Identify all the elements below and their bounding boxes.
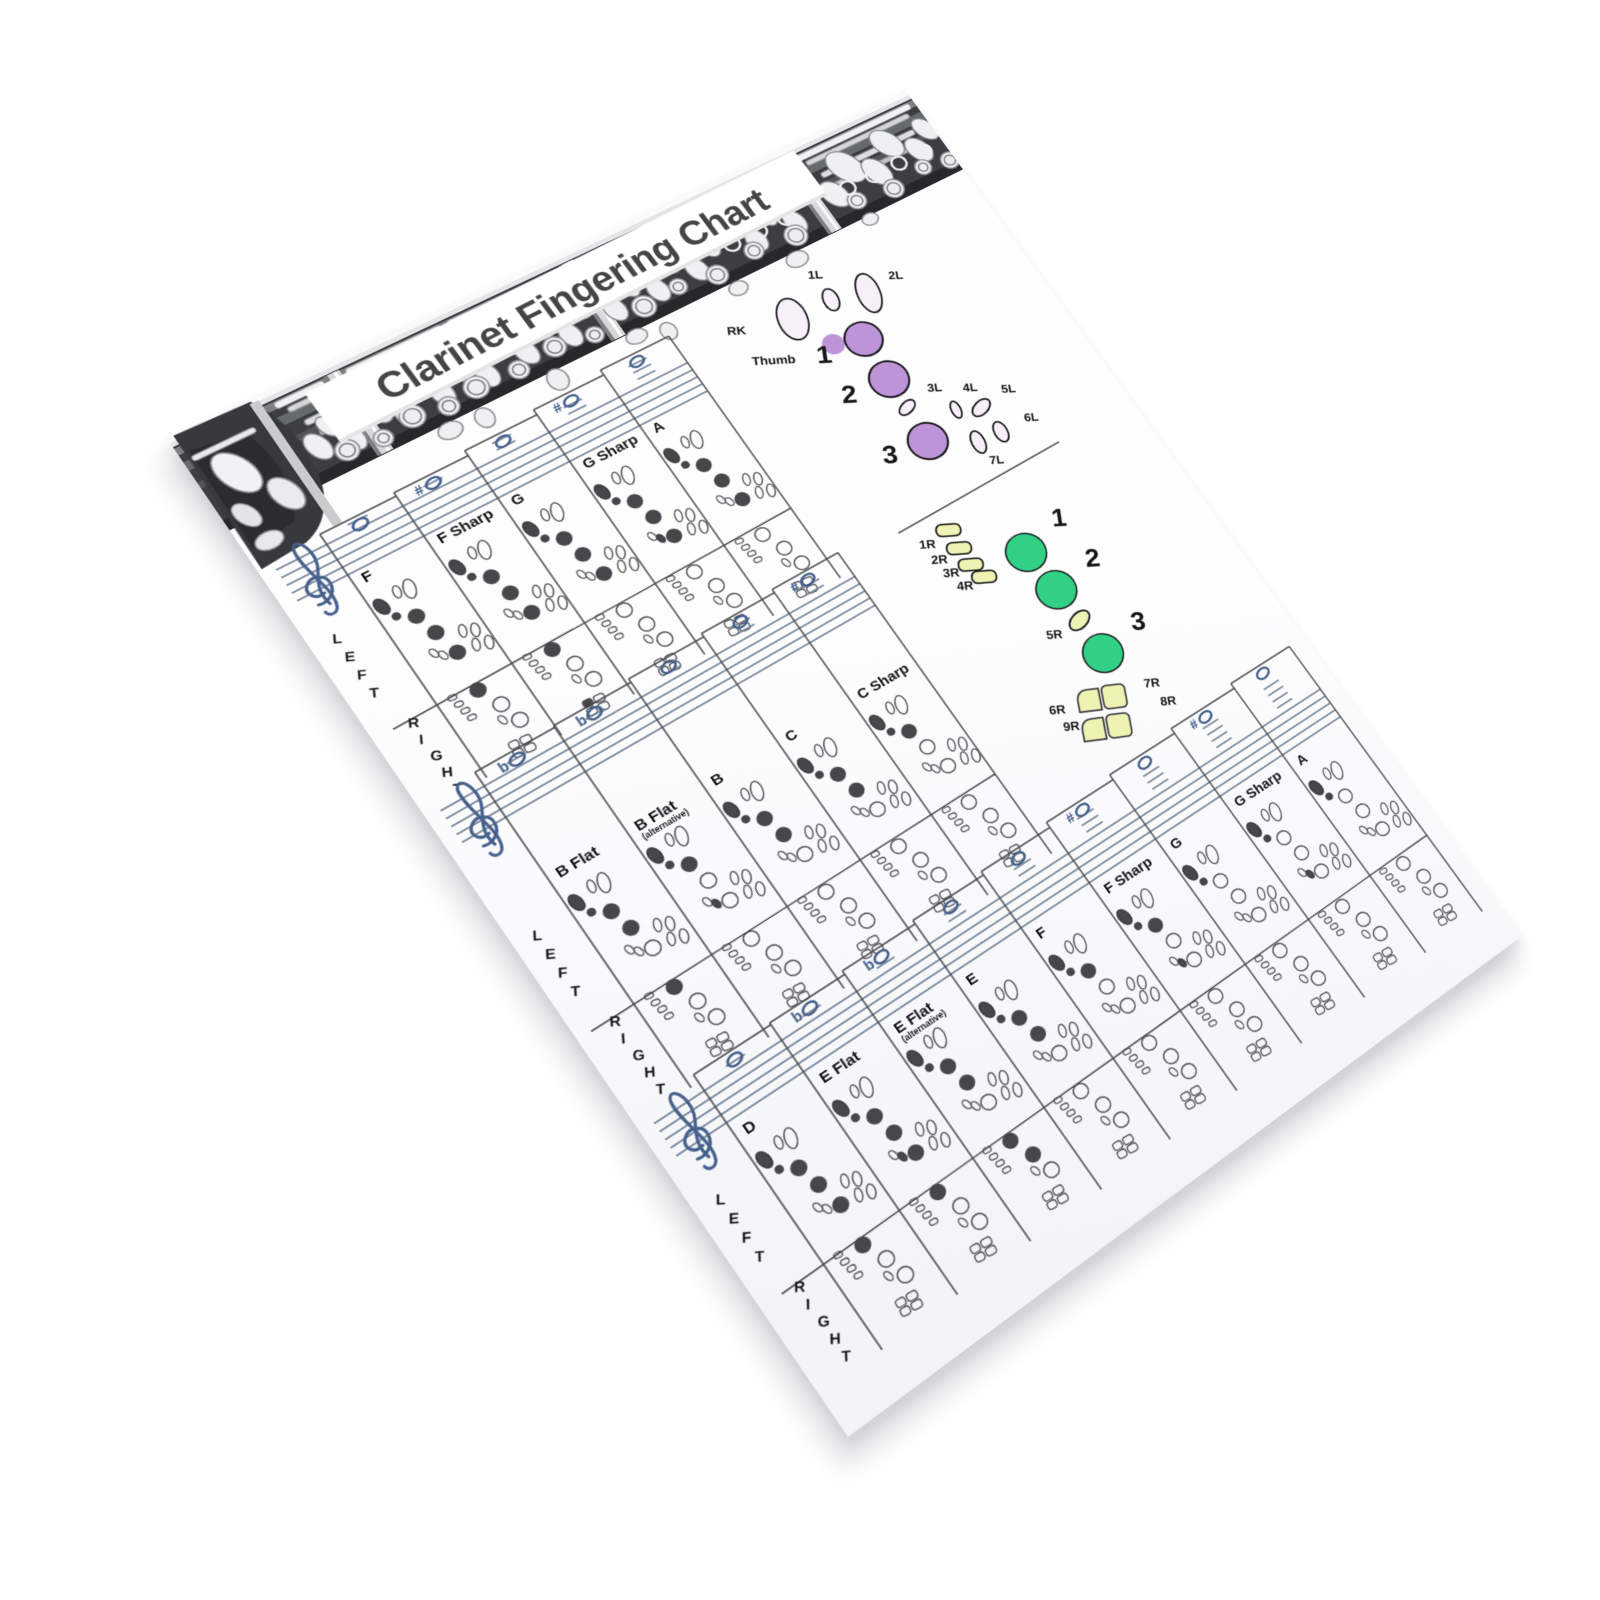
svg-text:T: T [570, 984, 580, 1001]
svg-text:6L: 6L [1023, 410, 1040, 424]
svg-text:G Sharp: G Sharp [1231, 768, 1285, 811]
svg-text:A: A [649, 418, 668, 436]
svg-text:E Flat: E Flat [816, 1047, 864, 1087]
svg-text:B: B [707, 770, 727, 790]
svg-text:5R: 5R [1045, 627, 1063, 642]
svg-text:R: R [407, 716, 420, 732]
svg-text:9R: 9R [1062, 718, 1080, 733]
svg-text:Thumb: Thumb [751, 352, 796, 367]
svg-text:F: F [1033, 924, 1051, 943]
svg-text:2: 2 [840, 381, 859, 409]
svg-text:RK: RK [726, 324, 747, 338]
svg-text:T: T [369, 686, 380, 702]
svg-text:7R: 7R [1143, 675, 1161, 690]
svg-text:G: G [507, 490, 528, 509]
svg-text:7L: 7L [988, 453, 1005, 467]
svg-text:G: G [1167, 834, 1186, 854]
svg-text:L: L [716, 1192, 726, 1209]
svg-text:I: I [621, 1031, 626, 1047]
svg-text:I: I [806, 1297, 811, 1314]
svg-text:H: H [829, 1331, 840, 1349]
svg-text:2: 2 [1083, 544, 1102, 572]
svg-text:G: G [818, 1313, 830, 1331]
svg-text:1: 1 [1049, 504, 1068, 532]
svg-text:2R: 2R [930, 552, 948, 567]
svg-text:R: R [609, 1014, 622, 1031]
svg-text:3R: 3R [942, 565, 960, 580]
svg-text:F: F [558, 965, 568, 982]
svg-text:E: E [344, 650, 356, 666]
svg-text:5L: 5L [1000, 382, 1017, 396]
svg-text:1L: 1L [807, 268, 824, 281]
svg-text:E: E [963, 969, 982, 989]
svg-text:B Flat: B Flat [552, 843, 603, 882]
svg-text:H: H [441, 765, 454, 781]
svg-text:3L: 3L [926, 381, 943, 395]
svg-text:C: C [782, 726, 802, 746]
svg-text:F: F [357, 668, 368, 684]
svg-text:F: F [742, 1230, 752, 1247]
svg-text:F: F [358, 567, 377, 586]
svg-text:A: A [1293, 750, 1311, 769]
svg-text:R: R [794, 1279, 806, 1297]
svg-text:L: L [332, 632, 343, 648]
svg-text:T: T [755, 1249, 765, 1266]
svg-text:C Sharp: C Sharp [854, 660, 913, 703]
svg-text:3: 3 [880, 441, 899, 469]
svg-text:4R: 4R [956, 578, 974, 593]
svg-text:T: T [655, 1081, 666, 1098]
svg-text:8R: 8R [1159, 693, 1177, 708]
svg-text:E: E [729, 1211, 740, 1228]
svg-text:I: I [419, 733, 425, 749]
svg-text:H: H [644, 1064, 656, 1081]
svg-text:6R: 6R [1048, 702, 1066, 717]
svg-text:1R: 1R [918, 537, 936, 552]
svg-text:Clarinet Fingering Chart: Clarinet Fingering Chart [367, 181, 777, 409]
svg-text:G: G [632, 1047, 645, 1064]
svg-text:D: D [739, 1117, 759, 1139]
svg-text:2L: 2L [887, 268, 904, 281]
svg-text:3: 3 [1129, 607, 1148, 636]
svg-text:T: T [841, 1348, 851, 1366]
svg-text:G: G [430, 748, 444, 764]
svg-text:4L: 4L [962, 380, 979, 394]
svg-text:L: L [532, 928, 542, 945]
svg-text:E: E [545, 947, 556, 964]
